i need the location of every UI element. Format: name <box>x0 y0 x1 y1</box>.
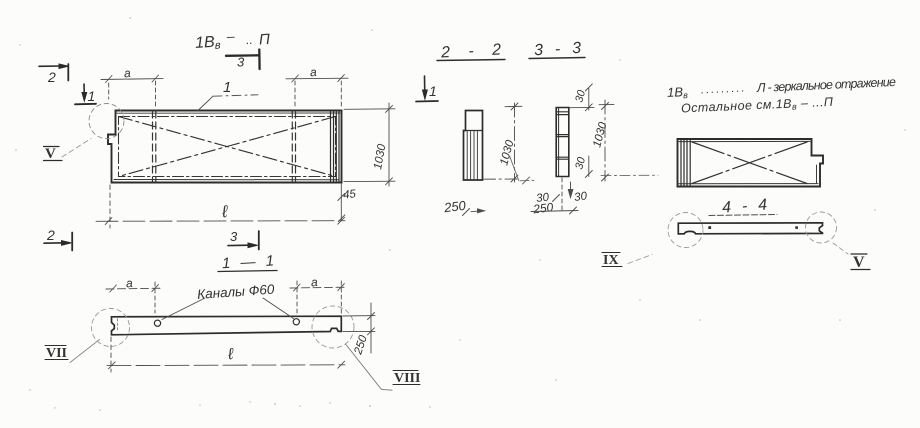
svg-text:2: 2 <box>47 69 56 85</box>
svg-text:250: 250 <box>442 198 467 216</box>
svg-text:а: а <box>126 276 134 290</box>
svg-text:1: 1 <box>429 83 437 99</box>
svg-text:VIII: VIII <box>394 371 420 386</box>
svg-text:V: V <box>853 254 865 271</box>
svg-text:4 - 4: 4 - 4 <box>722 196 768 216</box>
svg-text:3: 3 <box>230 229 238 244</box>
svg-text:а: а <box>310 65 318 79</box>
svg-text:..: .. <box>246 33 253 47</box>
svg-text:2: 2 <box>46 227 55 243</box>
svg-text:а: а <box>124 66 132 80</box>
svg-text:.........: ......... <box>701 82 747 96</box>
svg-text:3 - 3: 3 - 3 <box>534 40 582 59</box>
svg-text:2 - 2: 2 - 2 <box>440 41 502 61</box>
svg-text:30: 30 <box>574 190 589 204</box>
svg-text:IX: IX <box>603 253 619 268</box>
svg-text:–: – <box>225 28 235 44</box>
svg-text:V: V <box>45 146 56 162</box>
svg-text:3: 3 <box>237 55 245 70</box>
svg-text:1—1: 1—1 <box>222 252 275 272</box>
svg-text:VII: VII <box>46 346 67 361</box>
svg-text:45: 45 <box>343 188 358 201</box>
svg-text:1: 1 <box>223 79 231 96</box>
svg-text:П: П <box>259 31 271 49</box>
svg-text:1: 1 <box>88 88 96 104</box>
svg-text:250: 250 <box>531 200 554 216</box>
svg-text:а: а <box>311 275 319 289</box>
